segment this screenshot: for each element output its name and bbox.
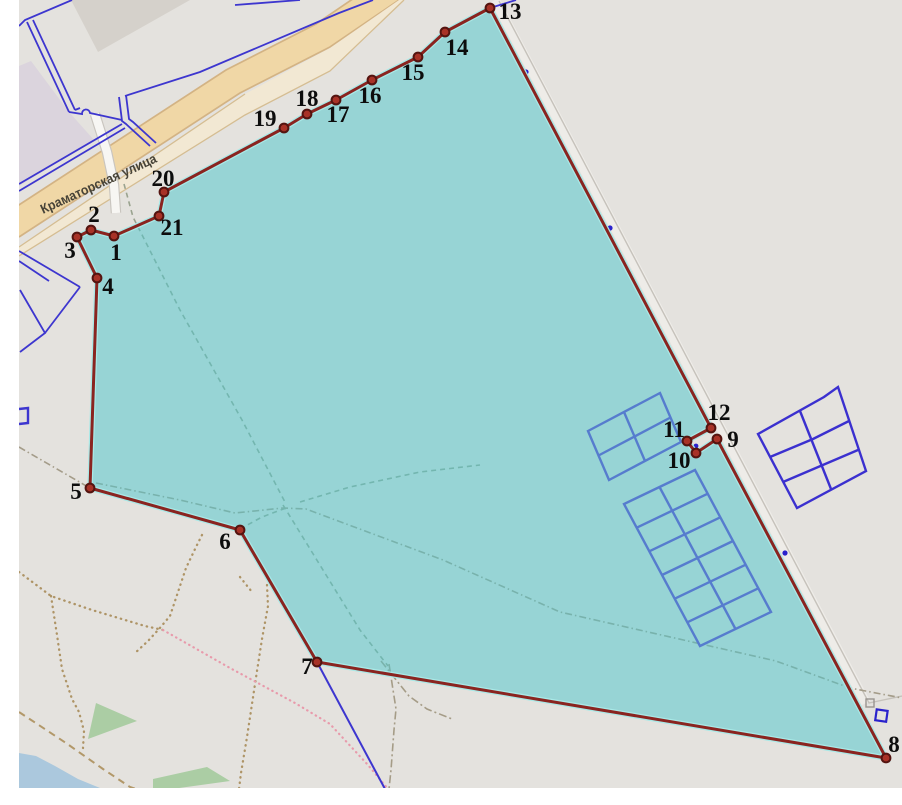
svg-text:12: 12 xyxy=(708,400,731,425)
svg-text:13: 13 xyxy=(499,0,522,24)
svg-text:20: 20 xyxy=(152,166,175,191)
svg-text:21: 21 xyxy=(161,215,184,240)
svg-text:11: 11 xyxy=(663,417,685,442)
svg-text:3: 3 xyxy=(64,238,76,263)
svg-text:1: 1 xyxy=(110,240,122,265)
svg-text:17: 17 xyxy=(327,102,350,127)
svg-text:15: 15 xyxy=(402,60,425,85)
svg-text:2: 2 xyxy=(88,202,100,227)
svg-text:4: 4 xyxy=(102,274,114,299)
svg-text:8: 8 xyxy=(888,732,900,757)
svg-text:9: 9 xyxy=(727,427,739,452)
svg-text:18: 18 xyxy=(296,86,319,111)
svg-text:16: 16 xyxy=(359,83,382,108)
svg-text:6: 6 xyxy=(219,529,231,554)
svg-text:7: 7 xyxy=(301,654,313,679)
svg-text:19: 19 xyxy=(254,106,277,131)
svg-text:10: 10 xyxy=(668,448,691,473)
svg-text:5: 5 xyxy=(70,479,82,504)
svg-text:14: 14 xyxy=(446,35,470,60)
